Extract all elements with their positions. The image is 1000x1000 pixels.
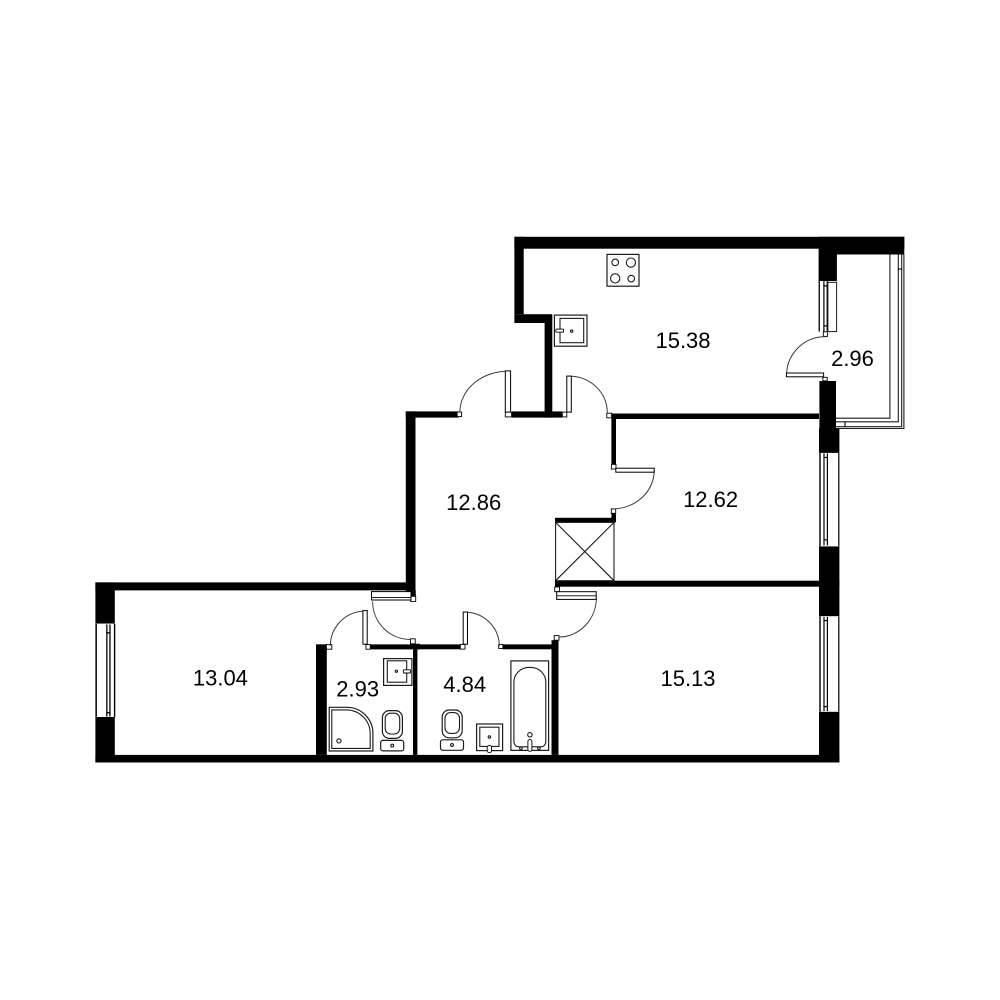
svg-text:12.62: 12.62 bbox=[683, 487, 738, 512]
svg-text:15.13: 15.13 bbox=[660, 666, 715, 691]
svg-text:13.04: 13.04 bbox=[193, 666, 248, 691]
svg-text:2.93: 2.93 bbox=[336, 677, 379, 702]
svg-text:15.38: 15.38 bbox=[655, 328, 710, 353]
svg-text:2.96: 2.96 bbox=[831, 346, 874, 371]
svg-text:12.86: 12.86 bbox=[446, 490, 501, 515]
svg-text:4.84: 4.84 bbox=[443, 672, 486, 697]
